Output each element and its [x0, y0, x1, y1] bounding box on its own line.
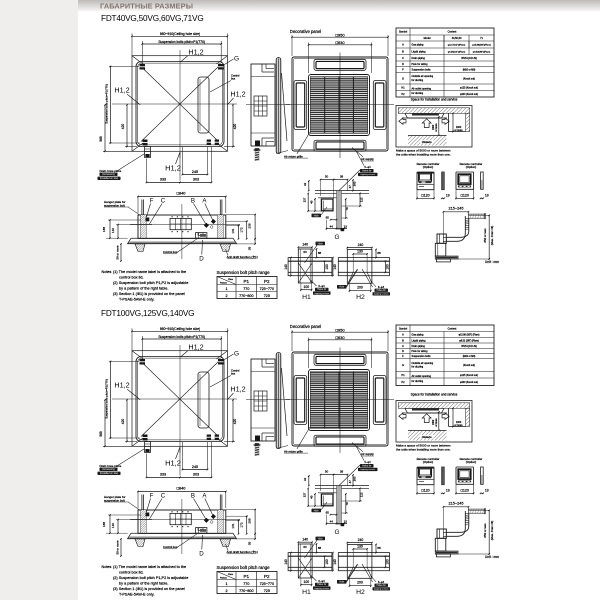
svg-text:(3) Section 1 (※1) is provided: (3) Section 1 (※1) is provided on the pa…	[113, 292, 185, 296]
svg-text:568: 568	[99, 136, 103, 142]
svg-text:H1: H1	[302, 589, 311, 596]
svg-text:Unit : mm: Unit : mm	[485, 260, 499, 264]
svg-text:137: 137	[303, 492, 307, 497]
svg-text:□120: □120	[461, 193, 469, 197]
svg-text:13: 13	[344, 225, 348, 229]
svg-text:Pitch: Pitch	[228, 278, 234, 281]
svg-text:Air supply: Air supply	[361, 452, 374, 456]
svg-text:VP25-I(O.D.32): VP25-I(O.D.32)	[461, 346, 477, 348]
svg-text:770~800: 770~800	[239, 294, 253, 298]
svg-text:88: 88	[377, 546, 381, 550]
svg-text:C: C	[402, 345, 404, 348]
svg-text:for ducting: for ducting	[412, 79, 424, 82]
svg-text:333: 333	[160, 473, 166, 477]
svg-text:140: 140	[284, 264, 288, 270]
svg-text:Suspension bolts: Suspension bolts	[412, 355, 432, 358]
svg-text:□120: □120	[421, 488, 429, 492]
svg-text:Air return grille: Air return grille	[284, 449, 303, 453]
svg-text:φ200 (Knock out): φ200 (Knock out)	[460, 93, 478, 96]
svg-text:5~φ4: 5~φ4	[364, 165, 371, 169]
svg-text:□840: □840	[177, 486, 187, 491]
svg-text:65: 65	[326, 511, 330, 515]
svg-text:Suspension bolts: Suspension bolts	[412, 69, 432, 72]
svg-text:47: 47	[348, 480, 352, 484]
svg-text:Air return grille: Air return grille	[284, 154, 303, 158]
svg-text:ГАБАРИТНЫЕ РАЗМЕРЫ: ГАБАРИТНЫЕ РАЗМЕРЫ	[100, 2, 193, 11]
svg-text:φ200 (Knock out): φ200 (Knock out)	[460, 381, 478, 384]
svg-text:or more: or more	[454, 129, 463, 132]
svg-text:19: 19	[446, 488, 450, 492]
svg-text:35: 35	[248, 247, 252, 251]
svg-text:by a pattern of the right tabl: by a pattern of the right table.	[119, 582, 168, 586]
svg-text:Hole: Hole	[314, 214, 320, 217]
svg-text:T-PSAE-5AW-E only.: T-PSAE-5AW-E only.	[119, 298, 154, 302]
svg-text:(Knock out): (Knock out)	[463, 364, 475, 367]
svg-text:50 or more: 50 or more	[116, 245, 120, 259]
svg-text:G: G	[402, 77, 404, 80]
svg-text:6~φ4: 6~φ4	[378, 285, 385, 289]
svg-text:130: 130	[357, 544, 363, 548]
svg-text:Outside air opening: Outside air opening	[412, 362, 434, 365]
svg-text:6~φ4: 6~φ4	[378, 580, 385, 584]
svg-text:Holes for: Holes for	[377, 584, 386, 587]
svg-text:□120: □120	[421, 193, 429, 197]
svg-text:240: 240	[358, 243, 364, 247]
svg-text:Decorative panel: Decorative panel	[290, 324, 321, 329]
svg-text:245: 245	[192, 170, 198, 174]
svg-text:5~φ4: 5~φ4	[364, 460, 371, 464]
svg-text:Notes: Notes	[102, 565, 112, 569]
svg-text:H1,2: H1,2	[114, 86, 129, 95]
svg-text:298: 298	[247, 518, 251, 523]
svg-text:(1) The model name label is at: (1) The model name label is attached to …	[113, 270, 186, 274]
svg-text:188: 188	[102, 227, 106, 232]
svg-text:420: 420	[233, 124, 237, 130]
svg-text:137: 137	[303, 197, 307, 202]
svg-text:100: 100	[385, 559, 389, 565]
svg-text:Liquid piping: Liquid piping	[412, 50, 427, 53]
svg-text:(Option): (Option)	[423, 460, 433, 464]
svg-text:100: 100	[325, 264, 329, 270]
svg-text:40: 40	[310, 200, 314, 204]
svg-text:(Accessory): (Accessory)	[102, 468, 115, 471]
svg-text:Anti draft function (※1): Anti draft function (※1)	[227, 255, 258, 259]
svg-text:1: 1	[225, 582, 227, 586]
svg-text:140: 140	[333, 264, 337, 270]
svg-text:tapping screws: tapping screws	[374, 588, 389, 591]
svg-text:H1: H1	[302, 294, 311, 301]
svg-text:Suspension bolt pitch range: Suspension bolt pitch range	[217, 270, 271, 275]
svg-text:568: 568	[99, 431, 103, 437]
svg-text:Holes for: Holes for	[362, 465, 371, 468]
svg-text:or more: or more	[435, 418, 438, 427]
svg-text:245: 245	[192, 465, 198, 469]
svg-text:Gas piping: Gas piping	[412, 334, 425, 337]
svg-text:G: G	[334, 234, 339, 241]
svg-text:□630: □630	[335, 335, 345, 340]
svg-text:FDT40VG,50VG,60VG,71VG: FDT40VG,50VG,60VG,71VG	[101, 14, 204, 23]
svg-text:140: 140	[333, 559, 337, 565]
svg-text:6~φ4: 6~φ4	[318, 579, 325, 583]
svg-text:Unit : mm: Unit : mm	[485, 555, 499, 559]
svg-text:215~245: 215~245	[449, 207, 464, 211]
svg-text:Content: Content	[448, 31, 457, 34]
svg-text:D: D	[402, 63, 404, 66]
svg-text:tapping screws: tapping screws	[315, 292, 330, 295]
svg-text:tapping screws: tapping screws	[374, 293, 389, 296]
svg-text:140: 140	[302, 537, 308, 541]
svg-text:Symbol: Symbol	[399, 31, 408, 34]
svg-text:2: 2	[225, 294, 227, 298]
svg-text:□630: □630	[335, 40, 345, 45]
svg-text:140: 140	[302, 242, 308, 246]
svg-text:130: 130	[357, 249, 363, 253]
svg-text:φ6.35(1/4″)(Flare): φ6.35(1/4″)(Flare)	[448, 50, 466, 53]
svg-text:(1) The model name label is at: (1) The model name label is attached to …	[113, 565, 186, 569]
svg-text:860~910(Ceiling hole size): 860~910(Ceiling hole size)	[160, 327, 200, 331]
svg-text:tapping screws: tapping screws	[361, 468, 376, 471]
svg-text:P1: P1	[243, 574, 249, 579]
svg-text:850 or less: 850 or less	[483, 523, 487, 538]
svg-text:38: 38	[340, 470, 344, 474]
svg-text:100: 100	[385, 264, 389, 270]
svg-text:32: 32	[303, 477, 307, 481]
svg-text:140: 140	[284, 559, 288, 565]
svg-text:by a pattern of the right tabl: by a pattern of the right table.	[119, 287, 168, 291]
svg-text:Holes for: Holes for	[362, 170, 371, 173]
svg-text:D: D	[199, 551, 204, 558]
svg-text:for ducting: for ducting	[412, 366, 424, 369]
svg-text:Liquid piping: Liquid piping	[412, 339, 427, 342]
svg-text:770: 770	[243, 582, 249, 586]
svg-text:D: D	[402, 350, 404, 353]
svg-text:Space for installation and ser: Space for installation and service	[411, 98, 458, 102]
svg-text:for ducting: for ducting	[412, 92, 424, 95]
svg-text:for ducting: for ducting	[412, 380, 424, 383]
svg-text:Control box: Control box	[163, 545, 178, 549]
svg-text:□950: □950	[335, 327, 345, 332]
svg-text:420: 420	[121, 419, 125, 425]
svg-text:Holes for: Holes for	[317, 288, 326, 291]
svg-text:□120: □120	[461, 488, 469, 492]
svg-text:□840: □840	[177, 191, 187, 196]
svg-text:G: G	[234, 351, 239, 358]
svg-text:Pattern: Pattern	[220, 577, 228, 580]
svg-text:control box lid.: control box lid.	[119, 276, 143, 280]
svg-text:420: 420	[121, 124, 125, 130]
svg-text:φ9.52 (3/8″) (Flare): φ9.52 (3/8″) (Flare)	[459, 339, 479, 342]
svg-text:tapping screws: tapping screws	[361, 173, 376, 176]
svg-text:40: 40	[310, 495, 314, 499]
svg-text:(3) Section 1 (※1) is provided: (3) Section 1 (※1) is provided on the pa…	[113, 587, 185, 591]
svg-text:Content: Content	[448, 327, 457, 330]
svg-text:Hole: Hole	[318, 242, 324, 245]
svg-text:44: 44	[330, 225, 334, 229]
svg-text:Symbol: Symbol	[399, 327, 408, 330]
svg-text:Hole: Hole	[339, 286, 345, 289]
svg-text:725: 725	[264, 294, 270, 298]
svg-text:88: 88	[318, 251, 322, 255]
svg-text:2: 2	[225, 589, 227, 593]
svg-text:200: 200	[357, 580, 363, 584]
svg-text:Notes: Notes	[102, 270, 112, 274]
svg-text:50 or more: 50 or more	[116, 540, 120, 554]
svg-text:188: 188	[102, 522, 106, 527]
svg-text:H1,2: H1,2	[230, 385, 245, 394]
svg-text:C: C	[161, 198, 166, 205]
svg-text:38: 38	[340, 175, 344, 179]
svg-text:Drain piping: Drain piping	[412, 57, 426, 60]
svg-text:Hole for wiring: Hole for wiring	[412, 350, 429, 353]
svg-text:φ125 (Knock out): φ125 (Knock out)	[460, 86, 478, 89]
svg-text:172: 172	[239, 522, 243, 527]
svg-text:60: 60	[303, 250, 307, 254]
svg-text:φ9.52(3/8″)(Flare): φ9.52(3/8″)(Flare)	[473, 50, 491, 53]
svg-text:Decorative panel: Decorative panel	[290, 29, 321, 34]
svg-text:725: 725	[264, 589, 270, 593]
svg-text:(Max. Drain lift): (Max. Drain lift)	[490, 521, 494, 541]
svg-text:FDT100VG,125VG,140VG: FDT100VG,125VG,140VG	[101, 309, 194, 318]
svg-text:(2) Suspension bolt pitch P1,P: (2) Suspension bolt pitch P1,P2 is adjus…	[113, 576, 188, 580]
svg-text:(2) Suspension bolt pitch P1,P: (2) Suspension bolt pitch P1,P2 is adjus…	[113, 281, 188, 285]
svg-text:G: G	[402, 364, 404, 367]
svg-text:100: 100	[303, 285, 309, 289]
svg-text:box: box	[231, 77, 236, 81]
svg-text:T-PSAE-5AW-E only.: T-PSAE-5AW-E only.	[119, 593, 154, 597]
svg-text:Space for installation and ser: Space for installation and service	[411, 393, 458, 397]
svg-text:or more: or more	[454, 424, 463, 427]
svg-text:VP25-I(O.D.32): VP25-I(O.D.32)	[461, 58, 477, 60]
svg-text:(M10 or M8): (M10 or M8)	[463, 69, 476, 72]
svg-text:131: 131	[231, 228, 235, 233]
svg-text:303: 303	[193, 178, 199, 182]
svg-text:B: B	[191, 198, 195, 205]
svg-text:G: G	[234, 56, 239, 63]
svg-text:Hole: Hole	[314, 509, 320, 512]
svg-text:(Knock out): (Knock out)	[463, 77, 475, 80]
svg-text:725~770: 725~770	[260, 287, 274, 291]
svg-text:140: 140	[111, 523, 115, 528]
svg-text:H1,2: H1,2	[165, 459, 181, 468]
svg-text:770: 770	[243, 287, 249, 291]
svg-text:H1,2: H1,2	[114, 381, 129, 390]
svg-text:Holes for: Holes for	[377, 289, 386, 292]
svg-text:(Option): (Option)	[423, 165, 433, 169]
svg-text:(Installed on site): (Installed on site)	[100, 177, 118, 180]
svg-text:40,50,60: 40,50,60	[452, 37, 462, 40]
svg-text:35: 35	[248, 542, 252, 546]
svg-text:P1: P1	[243, 279, 249, 284]
svg-text:(Option): (Option)	[466, 460, 476, 464]
svg-text:P2: P2	[264, 279, 270, 284]
svg-text:Suspension bolts pitch=P1(770): Suspension bolts pitch=P1(770)	[158, 40, 205, 44]
svg-text:(M10 or M8): (M10 or M8)	[463, 355, 476, 358]
svg-text:Air supply: Air supply	[361, 157, 374, 161]
svg-text:Air outlet opening: Air outlet opening	[412, 87, 432, 90]
svg-text:100: 100	[325, 559, 329, 565]
svg-text:725~770: 725~770	[260, 582, 274, 586]
svg-text:420: 420	[233, 419, 237, 425]
svg-text:B: B	[191, 493, 195, 500]
svg-text:13: 13	[344, 520, 348, 524]
svg-text:Control box: Control box	[163, 250, 178, 254]
svg-text:(Installed on site): (Installed on site)	[100, 472, 118, 475]
svg-text:or more: or more	[435, 123, 438, 132]
svg-text:1: 1	[225, 287, 227, 291]
svg-text:32: 32	[303, 182, 307, 186]
svg-text:333: 333	[160, 178, 166, 182]
svg-text:770~800: 770~800	[239, 589, 253, 593]
svg-text:H2: H2	[356, 589, 365, 596]
svg-text:Pitch: Pitch	[228, 573, 234, 576]
svg-text:H1,2: H1,2	[188, 48, 203, 57]
svg-text:(Max. Drain lift): (Max. Drain lift)	[490, 226, 494, 246]
svg-text:Hole for wiring: Hole for wiring	[412, 63, 429, 66]
svg-text:φ15.88 (5/8″) (Flare): φ15.88 (5/8″) (Flare)	[459, 334, 480, 337]
svg-text:control box lid.: control box lid.	[119, 571, 143, 575]
svg-text:H1,2: H1,2	[188, 343, 203, 352]
svg-text:Obstacle: Obstacle	[422, 436, 432, 439]
svg-text:50: 50	[325, 470, 329, 474]
svg-text:φ125 (Knock out): φ125 (Knock out)	[460, 374, 478, 377]
svg-text:65: 65	[326, 216, 330, 220]
svg-text:850 or less: 850 or less	[483, 228, 487, 243]
svg-text:Pattern: Pattern	[220, 282, 228, 285]
svg-text:(Option): (Option)	[466, 165, 476, 169]
svg-text:C: C	[402, 57, 404, 60]
svg-text:236: 236	[247, 223, 251, 228]
svg-text:Hole: Hole	[318, 537, 324, 540]
svg-text:47: 47	[348, 185, 352, 189]
svg-text:19: 19	[485, 193, 489, 197]
svg-text:φ12.7(1/2″)(Flare): φ12.7(1/2″)(Flare)	[448, 44, 466, 47]
svg-text:Gas piping: Gas piping	[412, 44, 425, 47]
svg-text:88: 88	[318, 546, 322, 550]
svg-text:19: 19	[485, 488, 489, 492]
svg-text:□950: □950	[335, 32, 345, 37]
svg-text:C: C	[161, 493, 166, 500]
svg-text:6~φ4: 6~φ4	[318, 284, 325, 288]
svg-text:H1,2: H1,2	[165, 164, 181, 173]
svg-text:240: 240	[358, 538, 364, 542]
svg-text:172: 172	[239, 227, 243, 232]
svg-text:100: 100	[303, 580, 309, 584]
svg-text:H1,2: H1,2	[230, 90, 245, 99]
svg-text:Holes for: Holes for	[317, 583, 326, 586]
svg-text:19: 19	[446, 193, 450, 197]
svg-text:G: G	[334, 529, 339, 536]
svg-text:the units when installing more: the units when installing more than one.	[396, 153, 451, 157]
svg-text:860~910(Ceiling hole size): 860~910(Ceiling hole size)	[160, 32, 200, 36]
svg-text:303: 303	[193, 473, 199, 477]
svg-text:Anti draft function (※1): Anti draft function (※1)	[227, 550, 258, 554]
svg-text:88: 88	[377, 251, 381, 255]
svg-text:D: D	[199, 256, 204, 263]
svg-text:tapping screws: tapping screws	[315, 587, 330, 590]
svg-text:box: box	[231, 372, 236, 376]
svg-text:Air outlet opening: Air outlet opening	[412, 375, 432, 378]
svg-text:Hole: Hole	[339, 581, 345, 584]
svg-text:H2: H2	[356, 294, 365, 301]
svg-text:Obstacle: Obstacle	[422, 141, 432, 144]
svg-text:Suspension bolt pitch range: Suspension bolt pitch range	[217, 565, 271, 570]
svg-text:P2: P2	[264, 574, 270, 579]
svg-text:(Accessory): (Accessory)	[102, 173, 115, 176]
svg-text:φ15.88(5/8″)(Flare): φ15.88(5/8″)(Flare)	[472, 44, 491, 47]
svg-text:Suspension bolts pitch=P1(770): Suspension bolts pitch=P1(770)	[158, 335, 205, 339]
svg-text:131: 131	[231, 523, 235, 528]
svg-text:60: 60	[303, 545, 307, 549]
svg-text:Model: Model	[424, 37, 431, 40]
svg-text:the units when installing more: the units when installing more than one.	[396, 448, 451, 452]
svg-text:Outside air opening: Outside air opening	[412, 75, 434, 78]
svg-text:215~245: 215~245	[449, 502, 464, 506]
svg-text:44: 44	[330, 520, 334, 524]
svg-text:200: 200	[357, 285, 363, 289]
svg-text:140: 140	[111, 228, 115, 233]
svg-text:50: 50	[325, 175, 329, 179]
svg-text:Drain piping: Drain piping	[412, 345, 426, 348]
